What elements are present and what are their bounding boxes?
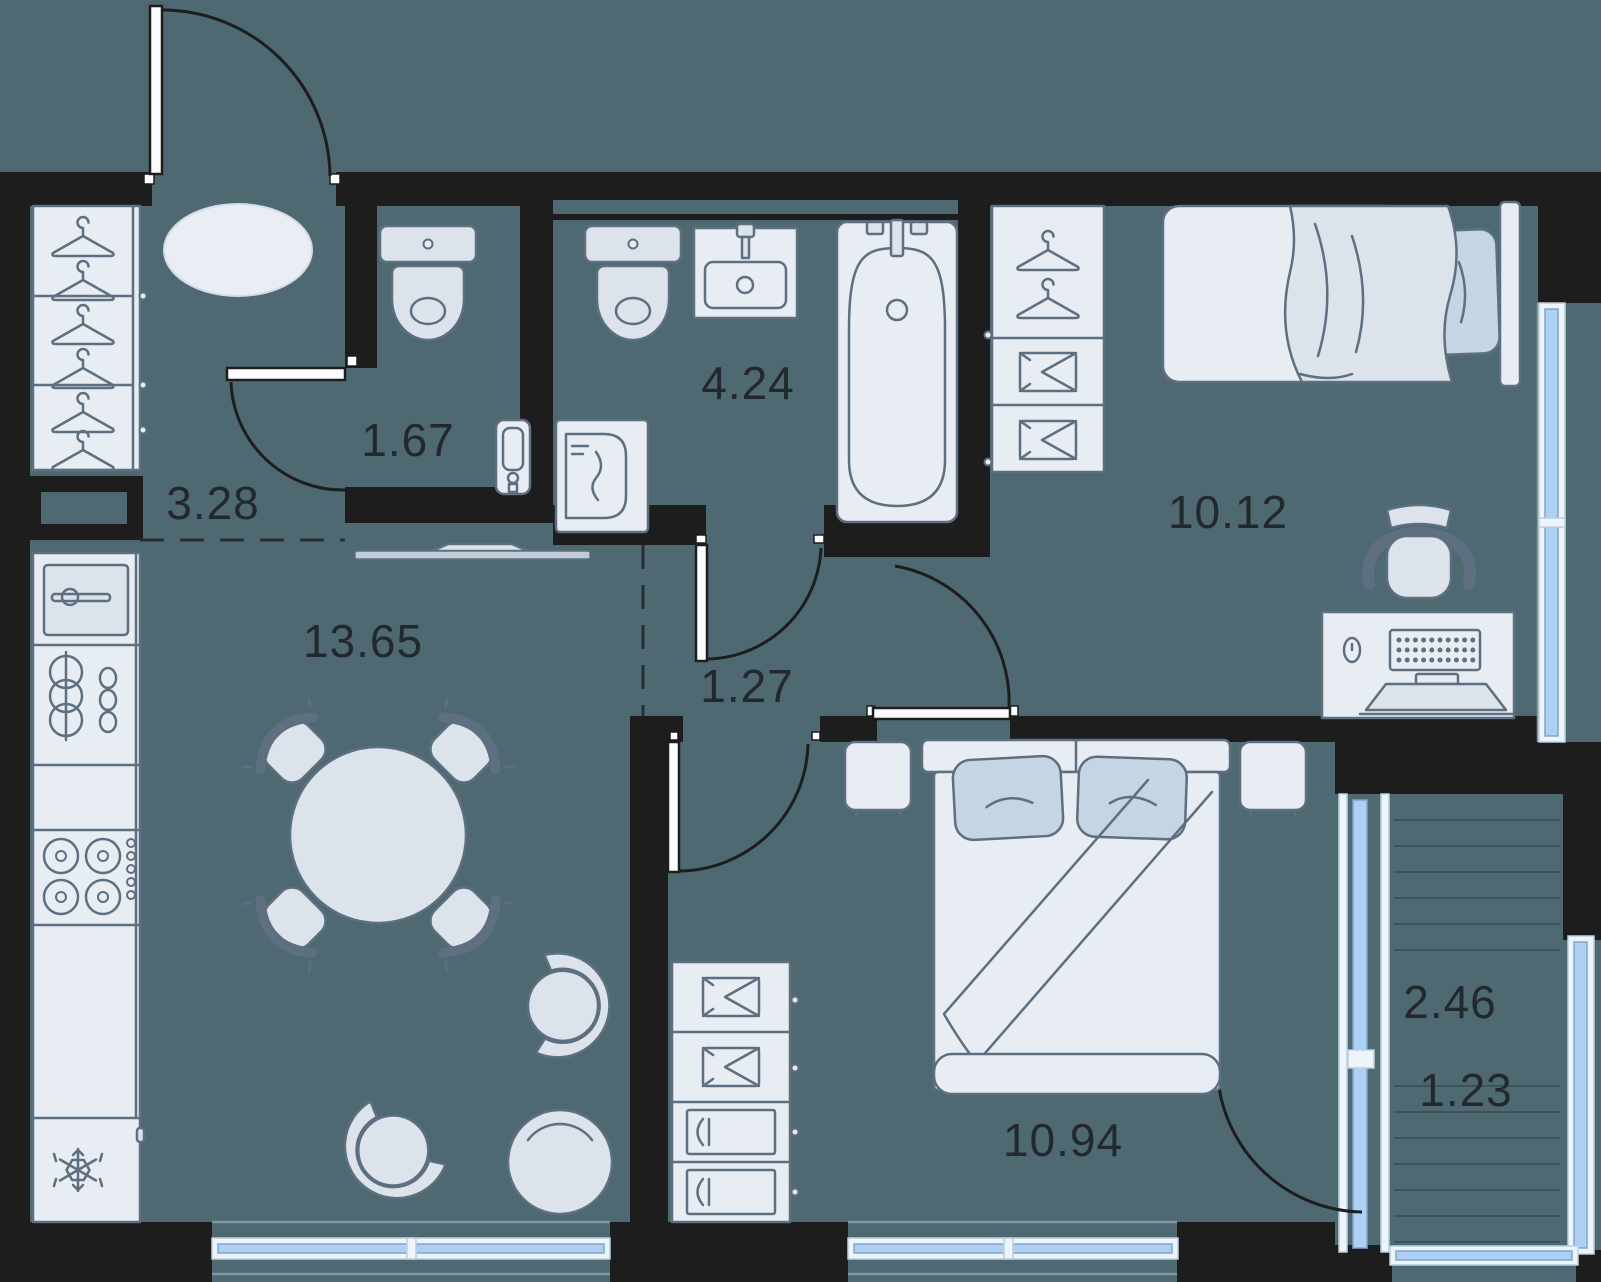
floor-plan: 3.28 1.67 4.24 10.12 13.65 1.27 10.94 2.… xyxy=(0,0,1601,1282)
bedroom-top-wardrobe xyxy=(985,206,1105,472)
balcony-bottom-glazing xyxy=(1390,1246,1578,1265)
wc-left-wall xyxy=(345,206,377,368)
tv xyxy=(355,544,590,559)
dining-table xyxy=(290,747,466,923)
water-heater-icon xyxy=(496,420,530,494)
balcony-right-glazing xyxy=(1568,936,1594,1254)
washing-machine-icon xyxy=(556,420,648,532)
bedroom-bottom-wardrobe xyxy=(672,962,799,1222)
bathroom-sink-icon xyxy=(694,224,797,318)
nightstand-right xyxy=(1240,742,1306,815)
desk-chair xyxy=(1368,505,1470,598)
bathtub-icon xyxy=(837,220,957,522)
area-label-wc: 1.67 xyxy=(361,413,455,467)
dining-set xyxy=(242,699,514,971)
kitchen-counter xyxy=(33,553,144,1222)
pouf xyxy=(508,1110,612,1214)
bathroom-duct-niche xyxy=(553,200,958,214)
area-label-kitchen-living: 13.65 xyxy=(303,614,423,668)
wc-toilet-icon xyxy=(380,226,476,340)
armchair-2 xyxy=(324,1090,456,1219)
bedroom-bottom-door xyxy=(668,732,820,872)
area-label-corridor: 1.27 xyxy=(700,659,794,713)
area-label-hallway: 3.28 xyxy=(166,476,260,530)
desk xyxy=(1322,612,1514,718)
headboard xyxy=(1500,202,1520,386)
area-label-balcony-total: 2.46 xyxy=(1403,975,1497,1029)
bedroom-top-door xyxy=(867,566,1018,719)
nightstand-left xyxy=(845,742,911,815)
oven-icon xyxy=(44,565,128,635)
living-bedroom-wall xyxy=(630,716,668,1222)
armchair-1 xyxy=(524,951,614,1062)
floor-plan-canvas xyxy=(0,0,1601,1282)
balcony-partition-glazing xyxy=(1339,794,1389,1252)
footboard xyxy=(934,1054,1220,1094)
bathroom-right-wall xyxy=(958,206,990,557)
balcony-deck-lines xyxy=(1394,820,1560,1242)
hallway-niche xyxy=(25,476,143,540)
entrance-door xyxy=(144,6,340,184)
bathroom-toilet-icon xyxy=(585,226,681,340)
living-room-window xyxy=(212,1238,610,1259)
double-bed xyxy=(922,740,1230,1094)
bathroom-door xyxy=(696,535,824,661)
hall-wardrobe xyxy=(33,206,147,470)
hall-rug xyxy=(164,204,312,296)
area-label-bedroom-top: 10.12 xyxy=(1168,485,1288,539)
single-bed xyxy=(1163,202,1520,386)
wc-door xyxy=(227,356,357,490)
balcony-top-wall xyxy=(1335,742,1601,794)
area-label-balcony-counted: 1.23 xyxy=(1419,1063,1513,1117)
bedrooms-divider-wall xyxy=(1010,716,1538,742)
area-label-bathroom: 4.24 xyxy=(701,356,795,410)
area-label-bedroom-bottom: 10.94 xyxy=(1003,1113,1123,1167)
bedroom-top-window xyxy=(1539,303,1565,742)
bedroom-bottom-window xyxy=(848,1238,1178,1259)
